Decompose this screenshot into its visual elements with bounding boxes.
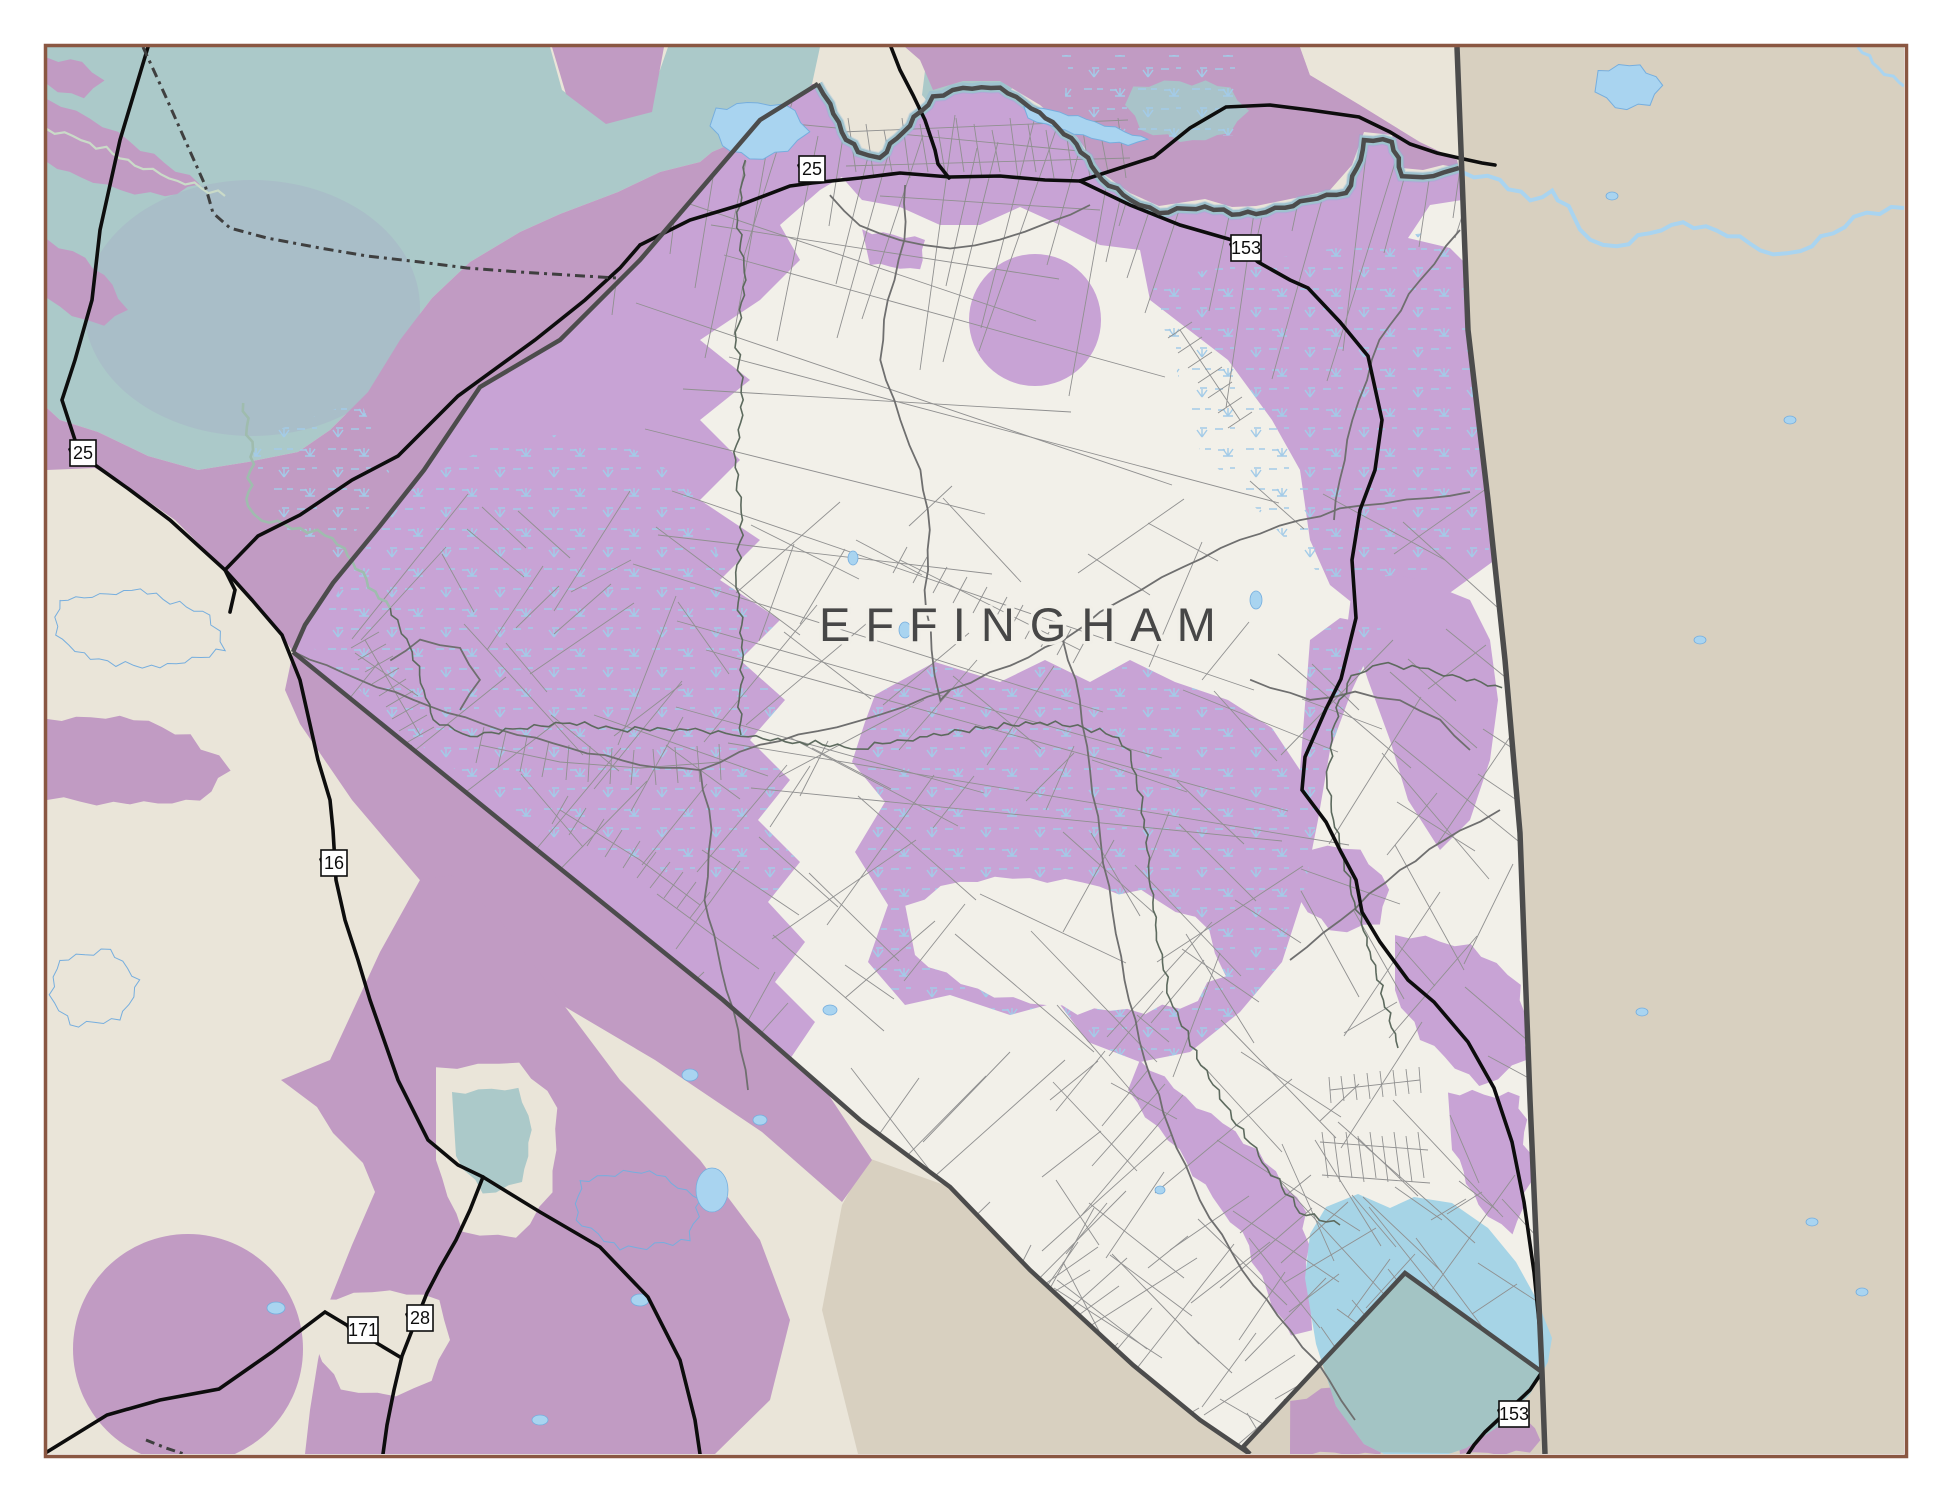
svg-text:28: 28 [410, 1308, 430, 1328]
svg-text:25: 25 [802, 159, 822, 179]
svg-text:153: 153 [1499, 1404, 1529, 1424]
svg-text:171: 171 [348, 1320, 378, 1340]
svg-text:16: 16 [324, 853, 344, 873]
svg-text:25: 25 [73, 443, 93, 463]
svg-text:153: 153 [1231, 238, 1261, 258]
svg-text:EFFINGHAM: EFFINGHAM [819, 598, 1231, 651]
